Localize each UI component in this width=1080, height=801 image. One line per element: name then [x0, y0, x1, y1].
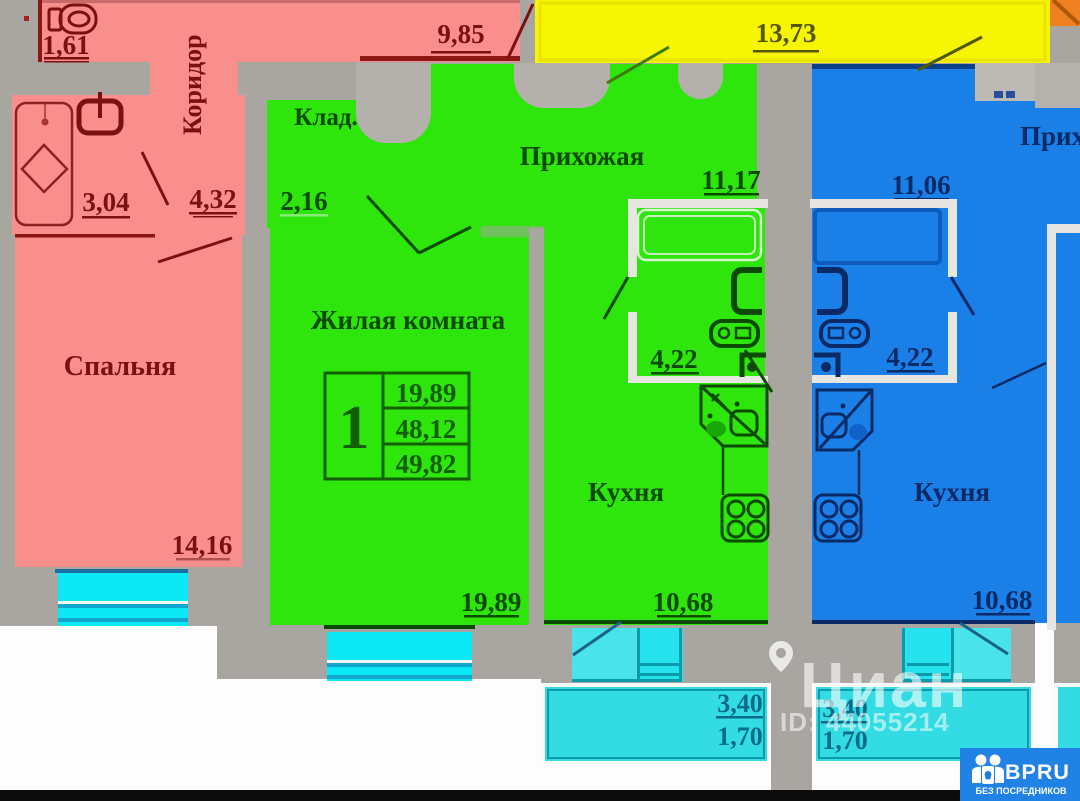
svg-text:11,17: 11,17: [701, 165, 760, 195]
svg-text:9,85: 9,85: [437, 19, 484, 49]
svg-text:Кухня: Кухня: [914, 477, 990, 507]
svg-text:3,40: 3,40: [717, 689, 763, 718]
svg-text:19,89: 19,89: [396, 378, 457, 408]
svg-text:11,06: 11,06: [891, 170, 950, 200]
svg-text:Спальня: Спальня: [64, 351, 176, 382]
svg-text:13,73: 13,73: [756, 18, 817, 48]
svg-text:ID: 44055214: ID: 44055214: [780, 707, 950, 737]
svg-text:Кухня: Кухня: [588, 477, 664, 507]
svg-text:Коридор: Коридор: [178, 34, 207, 135]
svg-text:Прихож: Прихож: [1020, 121, 1080, 151]
svg-text:Жилая комната: Жилая комната: [311, 305, 506, 335]
svg-text:1,61: 1,61: [42, 30, 89, 60]
svg-text:10,68: 10,68: [653, 587, 714, 617]
svg-text:49,82: 49,82: [396, 449, 457, 479]
svg-text:1,70: 1,70: [717, 722, 763, 751]
svg-text:4,22: 4,22: [886, 342, 933, 372]
svg-text:4,32: 4,32: [189, 184, 236, 214]
svg-text:БЕЗ ПОСРЕДНИКОВ: БЕЗ ПОСРЕДНИКОВ: [976, 786, 1067, 796]
svg-text:2,16: 2,16: [280, 186, 327, 216]
svg-text:1: 1: [339, 394, 370, 462]
svg-text:19,89: 19,89: [461, 587, 522, 617]
svg-text:Прихожая: Прихожая: [520, 141, 645, 171]
svg-text:BPRU: BPRU: [1005, 760, 1070, 784]
svg-text:Клад.: Клад.: [294, 104, 358, 131]
svg-text:4,22: 4,22: [650, 344, 697, 374]
svg-text:48,12: 48,12: [396, 414, 457, 444]
svg-text:3,04: 3,04: [82, 187, 129, 217]
svg-text:14,16: 14,16: [172, 530, 233, 560]
svg-text:10,68: 10,68: [972, 585, 1033, 615]
